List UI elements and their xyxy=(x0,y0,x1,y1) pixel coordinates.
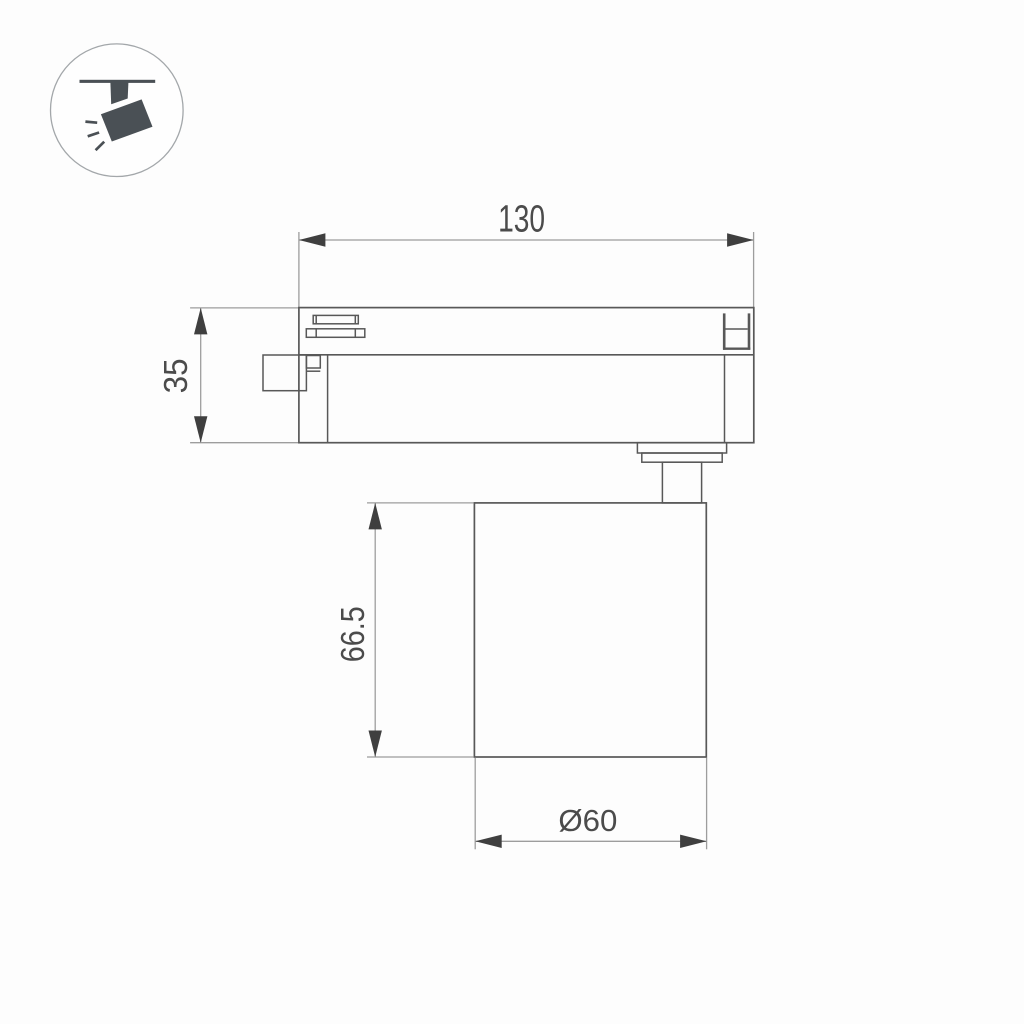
svg-text:66.5: 66.5 xyxy=(334,606,371,662)
svg-text:130: 130 xyxy=(498,198,545,240)
svg-text:35: 35 xyxy=(157,358,194,393)
svg-text:Ø60: Ø60 xyxy=(558,804,617,838)
